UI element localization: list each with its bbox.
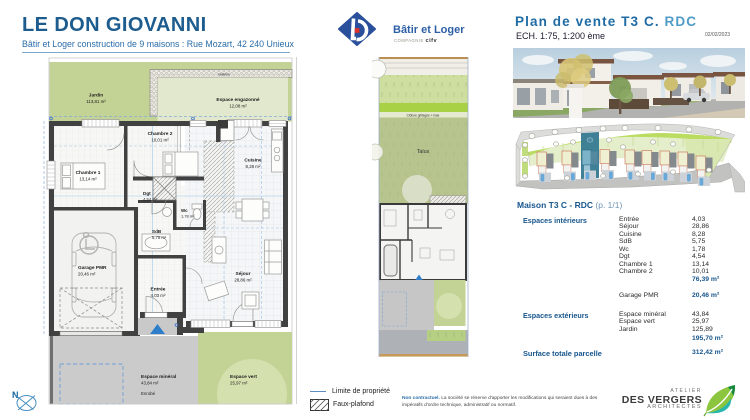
svg-text:Clôture grillagée + haie: Clôture grillagée + haie [407, 113, 440, 117]
svg-text:43,84 m²: 43,84 m² [141, 381, 159, 386]
svg-text:Entrée: Entrée [151, 287, 166, 293]
svg-text:5,75 m²: 5,75 m² [152, 235, 167, 240]
svg-text:113,81 m²: 113,81 m² [86, 99, 106, 104]
svg-text:12,08 m²: 12,08 m² [229, 104, 247, 109]
svg-text:Cuisine: Cuisine [244, 158, 262, 164]
svg-text:4,54 m²: 4,54 m² [143, 197, 158, 202]
svg-text:Gabion: Gabion [218, 73, 230, 77]
svg-text:Talus: Talus [417, 149, 430, 155]
svg-text:Jardin: Jardin [89, 93, 103, 99]
svg-text:10,01 m²: 10,01 m² [151, 138, 169, 143]
svg-text:1,78 m²: 1,78 m² [181, 214, 195, 219]
svg-text:Séjour: Séjour [236, 271, 251, 277]
svg-text:Espace vert: Espace vert [230, 374, 257, 380]
svg-text:20,46 m²: 20,46 m² [78, 272, 96, 277]
svg-text:Espace engazonné: Espace engazonné [216, 97, 260, 103]
svg-text:SdB: SdB [152, 229, 162, 234]
svg-text:13,14 m²: 13,14 m² [79, 177, 97, 182]
svg-text:Enrobé: Enrobé [141, 391, 156, 396]
svg-text:Dgt: Dgt [143, 191, 151, 196]
svg-text:25,97 m²: 25,97 m² [230, 381, 248, 386]
svg-text:Espace minéral: Espace minéral [141, 374, 176, 380]
svg-text:4,03 m²: 4,03 m² [151, 293, 166, 298]
svg-text:Garage PMR: Garage PMR [78, 265, 107, 271]
svg-text:28,86 m²: 28,86 m² [234, 278, 252, 283]
svg-text:8,28 m²: 8,28 m² [246, 164, 261, 169]
svg-text:Wc: Wc [181, 208, 188, 213]
svg-text:Chambre 1: Chambre 1 [76, 170, 101, 176]
svg-text:Chambre 2: Chambre 2 [148, 131, 173, 137]
